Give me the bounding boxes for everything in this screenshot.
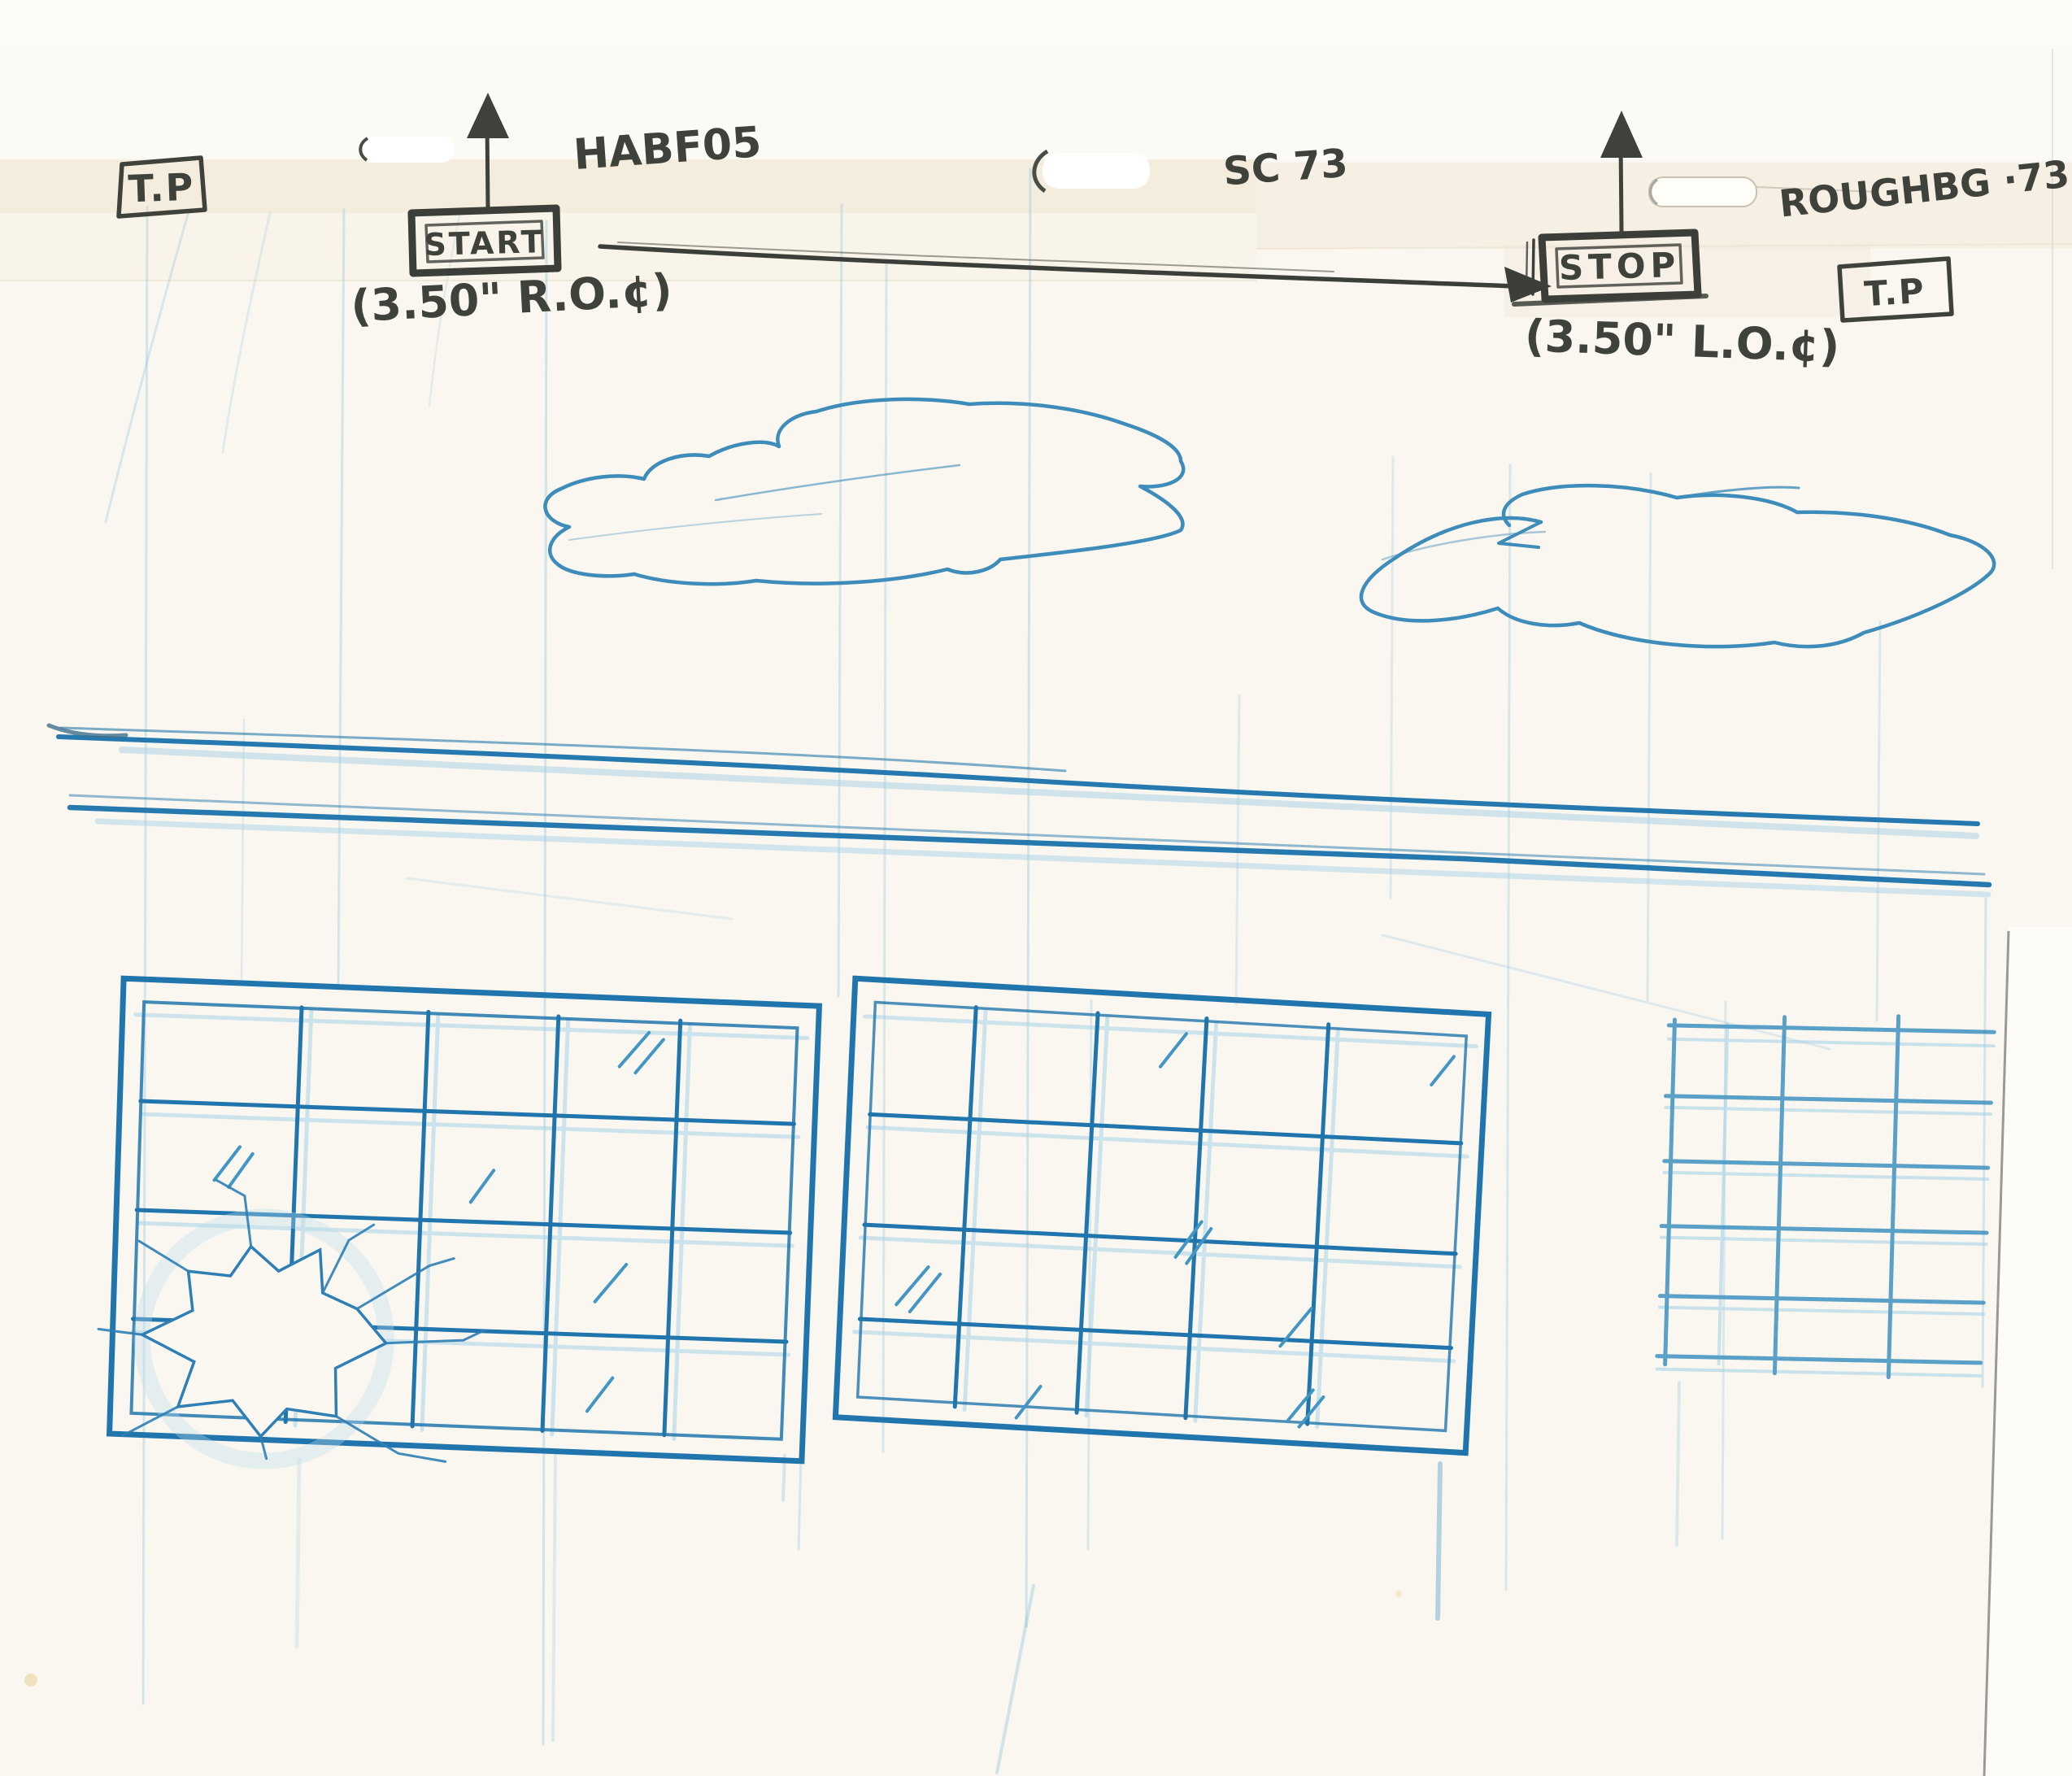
scene-number: SC 73 xyxy=(1221,141,1349,195)
tp-left-label: T.P xyxy=(128,165,195,211)
scanned-rough-background-sheet: T.P START (3.50" R.O.¢) HABF05 SC 73 xyxy=(0,0,2072,1776)
tp-right-label: T.P xyxy=(1863,271,1926,314)
start-label: START xyxy=(424,224,545,263)
peg-hole xyxy=(1034,151,1150,191)
tp-box-left: T.P xyxy=(119,158,205,216)
peg-hole xyxy=(359,137,454,163)
paper-stain xyxy=(24,1674,37,1687)
stop-label: STOP xyxy=(1558,245,1681,288)
